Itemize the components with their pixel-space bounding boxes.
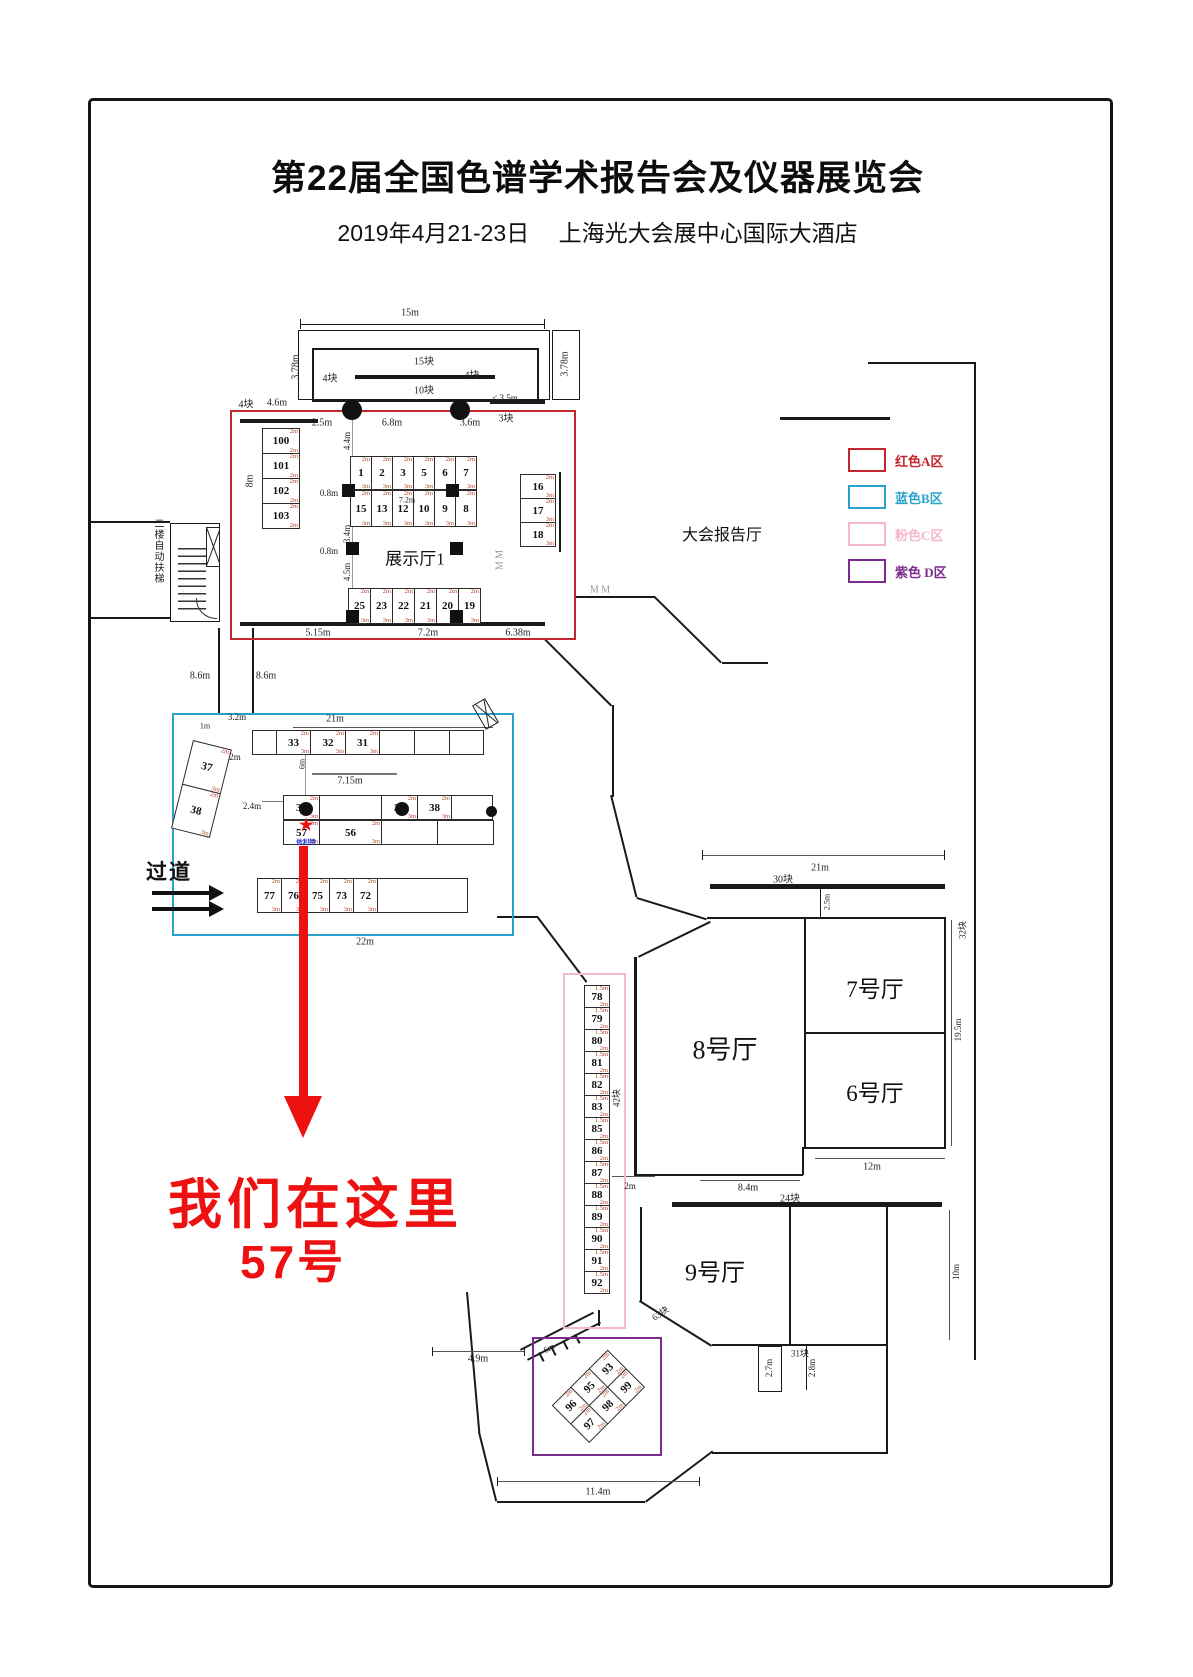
booth-number: 21	[420, 600, 431, 612]
booth-empty	[252, 730, 277, 755]
wall-line	[815, 1158, 945, 1159]
booth-number: 56	[345, 827, 356, 839]
column-marker	[342, 400, 362, 420]
dim-label: 2.5m	[312, 418, 332, 429]
booth-32: 322m3m	[310, 730, 346, 755]
here-arrow-head-icon	[284, 1096, 322, 1138]
zone-b-mid-row1: 352m3m372m3m382m3m	[283, 795, 493, 820]
dim-label: < 3.5m	[492, 393, 518, 403]
booth-size-label: 2m	[449, 588, 457, 595]
booth-number: 23	[376, 600, 387, 612]
booth-size-label: 2m	[600, 1287, 608, 1294]
booth-86: 861.5m2m	[584, 1139, 610, 1162]
booth-size-label: 2m	[383, 490, 391, 497]
booth-number: 19	[464, 600, 475, 612]
booth-size-label: 2m	[546, 474, 554, 481]
wall-line	[699, 1477, 700, 1486]
dim-label: 2m	[624, 1181, 636, 1191]
escalator-shaft	[206, 527, 220, 567]
dim-label: 19.5m	[953, 1019, 963, 1042]
booth-size-label: 2m	[546, 498, 554, 505]
booth-82: 821.5m2m	[584, 1073, 610, 1096]
dim-label: 6.38m	[505, 628, 530, 639]
column-marker	[395, 802, 409, 816]
booth-number: 10	[419, 503, 430, 515]
wall-line	[252, 628, 254, 713]
wall-line	[634, 957, 637, 1177]
booth-size-label: 3m	[427, 617, 435, 624]
hall9-label: 9号厅	[685, 1253, 745, 1288]
wall-line	[722, 662, 768, 664]
legend-swatch	[848, 559, 886, 583]
booth-92: 921.5m2m	[584, 1271, 610, 1294]
booth-number: 13	[377, 503, 388, 515]
booth-size-label: 3m	[446, 520, 454, 527]
booth-size-label: 1.5m	[595, 1249, 608, 1256]
booth-size-label: 2m	[344, 878, 352, 885]
wall-line	[432, 1351, 525, 1352]
dim-label: 4.6m	[267, 398, 287, 409]
dim-label: 2.5m	[823, 894, 832, 910]
booth-size-label: 2m	[362, 456, 370, 463]
booth-size-label: 2m	[362, 490, 370, 497]
dim-label: 2.8m	[807, 1359, 817, 1377]
wall-line	[780, 417, 890, 420]
column-marker	[342, 484, 355, 497]
booth-size-label: 2m	[383, 588, 391, 595]
column-marker	[486, 806, 497, 817]
wall-line	[944, 850, 945, 860]
dim-label: 2.7m	[764, 1359, 774, 1377]
booth-size-label: 3m	[301, 748, 309, 755]
dim-label: 3.6m	[460, 418, 480, 429]
booth-size-label: 1.5m	[595, 1227, 608, 1234]
booth-size-label: 1.5m	[595, 985, 608, 992]
booth-size-label: 1.5m	[595, 1183, 608, 1190]
booth-size-label: 2m	[467, 490, 475, 497]
booth-size-label: 2m	[272, 878, 280, 885]
booth-73: 732m3m	[329, 878, 354, 913]
dim-label: 32块	[956, 921, 969, 939]
booth-empty	[377, 878, 468, 913]
wall-line	[789, 1207, 791, 1345]
dim-label: 15块	[414, 353, 434, 368]
booth-31: 312m3m	[345, 730, 380, 755]
booth-size-label: 2m	[370, 730, 378, 737]
booth-77: 772m3m	[257, 878, 282, 913]
wall-line	[974, 362, 976, 1360]
dim-label: 4.5m	[342, 563, 352, 581]
wall-line	[702, 850, 703, 860]
booth-83: 831.5m2m	[584, 1095, 610, 1118]
page-subtitle: 2019年4月21-23日 上海光大会展中心国际大酒店	[88, 214, 1107, 248]
booth-size-label: 2m	[320, 878, 328, 885]
column-marker	[446, 484, 459, 497]
legend-row: 蓝色B区	[848, 485, 943, 509]
dim-label: 8.4m	[738, 1183, 758, 1194]
booth-103: 1032m2m	[262, 503, 300, 529]
booth-size-label: 1.5m	[595, 1029, 608, 1036]
wall-line	[707, 917, 945, 919]
booth-number: 9	[442, 503, 448, 515]
hall8-label: 8号厅	[692, 1030, 757, 1067]
booth-size-label: 2m	[467, 456, 475, 463]
dim-label: 2.4m	[243, 801, 261, 811]
dim-label: 6m	[298, 759, 307, 769]
dim-label: 2m	[229, 752, 241, 762]
booth-number: 75	[312, 890, 323, 902]
booth-size-label: 3m	[344, 906, 352, 913]
booth-size-label: 2m	[425, 456, 433, 463]
wall-line	[640, 1207, 642, 1302]
booth-56: 562m3m	[319, 820, 382, 845]
booth-size-label: 2m	[290, 453, 298, 460]
dim-label: 8.6m	[256, 671, 276, 682]
wall-line	[804, 1032, 945, 1034]
booth-number: 6	[442, 467, 448, 479]
wall-line	[802, 1147, 804, 1175]
wall-line	[612, 705, 614, 797]
wall-line	[218, 628, 220, 713]
booth-75: 752m3m	[305, 878, 330, 913]
booth-empty	[449, 730, 484, 755]
booth-101: 1012m2m	[262, 453, 300, 479]
booth-size-label: 1.5m	[595, 1007, 608, 1014]
booth-size-label: 3m	[404, 520, 412, 527]
booth-18: 182m3m	[520, 522, 556, 547]
booth-number: 37	[200, 760, 214, 774]
booth-size-label: 3m	[405, 617, 413, 624]
booth-number: 95	[581, 1379, 597, 1395]
dim-label: 6.8m	[382, 418, 402, 429]
booth-size-label: 3m	[383, 483, 391, 490]
dim-label: 7.2m	[418, 628, 438, 639]
booth-number-text: 57号	[240, 1226, 346, 1292]
escalator-label: 二楼自动扶梯	[150, 518, 165, 622]
wall-line	[868, 362, 975, 364]
zone-b-row-bottom: 772m3m762m3m752m3m732m3m722m3m	[257, 878, 468, 913]
wall-line	[497, 1477, 498, 1486]
booth-size-label: 3m	[442, 813, 450, 820]
booth-empty	[379, 730, 415, 755]
booth-number: 38	[189, 804, 203, 818]
wall-line	[710, 884, 945, 889]
booth-size-label: 3m	[425, 483, 433, 490]
dim-label: 3.78m	[560, 351, 571, 376]
page-title: 第22届全国色谱学术报告会及仪器展览会	[88, 150, 1107, 201]
column-marker	[299, 802, 313, 816]
booth57-star-icon: ★	[299, 815, 313, 835]
dim-label: 15m	[401, 308, 419, 319]
booth-number: 103	[273, 510, 290, 522]
dim-label: 3.2m	[228, 712, 246, 722]
booth-size-label: 3m	[471, 617, 479, 624]
booth-number: 76	[288, 890, 299, 902]
booth-number: 16	[533, 481, 544, 493]
booth-number: 99	[618, 1379, 634, 1395]
dim-label: 0.8m	[320, 488, 338, 498]
booth-empty	[437, 820, 494, 845]
booth-number: 8	[463, 503, 469, 515]
dim-label: 4.9m	[468, 1354, 488, 1365]
legend-row: 红色A区	[848, 448, 943, 472]
booth-size-label: 1.5m	[595, 1073, 608, 1080]
booth-size-label: 3m	[404, 483, 412, 490]
booth-size-label: 3m	[272, 906, 280, 913]
dim-label: 1m	[200, 722, 210, 731]
booth-13: 132m3m	[371, 490, 393, 527]
hall-exhibit1-label: 展示厅1	[385, 545, 445, 570]
booth-size-label: 2m	[471, 588, 479, 595]
booth-number: 72	[360, 890, 371, 902]
wall-line	[951, 920, 952, 1146]
wall-line	[432, 1347, 433, 1356]
booth-89: 891.5m2m	[584, 1205, 610, 1228]
booth-16: 162m3m	[520, 474, 556, 499]
zone-c-column: 781.5m2m791.5m2m801.5m2m811.5m2m821.5m2m…	[584, 985, 610, 1294]
booth-2: 22m3m	[371, 456, 393, 490]
booth-100: 1002m2m	[262, 428, 300, 454]
dim-label: 12m	[863, 1162, 881, 1173]
booth-size-label: 2m	[209, 791, 219, 800]
booth-23: 232m3m	[370, 588, 393, 624]
booth-number: 77	[264, 890, 275, 902]
dim-label: 21m	[326, 714, 344, 725]
legend-row: 粉色C区	[848, 522, 943, 546]
wall-line	[820, 889, 821, 918]
hall6-label: 6号厅	[846, 1074, 904, 1108]
booth-size-label: 2m	[301, 730, 309, 737]
booth-87: 871.5m2m	[584, 1161, 610, 1184]
dim-label: 0.8m	[320, 546, 338, 556]
dim-label: 4块	[239, 396, 254, 411]
booth-size-label: 3m	[362, 520, 370, 527]
column-marker	[450, 610, 463, 623]
booth-90: 901.5m2m	[584, 1227, 610, 1250]
booth-88: 881.5m2m	[584, 1183, 610, 1206]
booth-size-label: 2m	[310, 795, 318, 802]
wall-line	[949, 1210, 950, 1340]
wall-line	[702, 855, 945, 856]
dim-label: 42块	[610, 1089, 623, 1107]
booth-number: 7	[463, 467, 469, 479]
hall-report-label: 大会报告厅	[682, 521, 762, 545]
dim-label: 11.4m	[586, 1487, 611, 1498]
booth-size-label: 2m	[408, 795, 416, 802]
dim-label: 4块	[465, 367, 480, 382]
column-marker	[346, 610, 359, 623]
booth-number: 102	[273, 485, 290, 497]
booth-number: 3	[400, 467, 406, 479]
booth-80: 801.5m2m	[584, 1029, 610, 1052]
booth-number: 1	[358, 467, 364, 479]
booth-number: 97	[581, 1416, 597, 1432]
booth-size-label: 2m	[368, 878, 376, 885]
booth-size-label: 2m	[290, 522, 298, 529]
wall-line	[886, 1207, 888, 1346]
booth-21: 212m3m	[414, 588, 437, 624]
dim-label: M M	[495, 550, 506, 570]
dim-label: 5.15m	[305, 628, 330, 639]
booth-size-label: 3m	[368, 906, 376, 913]
booth-size-label: 3m	[383, 617, 391, 624]
dim-label: 21m	[811, 863, 829, 874]
booth-size-label: 2m	[336, 730, 344, 737]
booth-empty	[381, 820, 438, 845]
hall7-label: 7号厅	[846, 970, 904, 1004]
booth-102: 1022m2m	[262, 478, 300, 504]
booth-91: 911.5m2m	[584, 1249, 610, 1272]
booth-size-label: 1.5m	[595, 1205, 608, 1212]
booth-size-label: 2m	[546, 522, 554, 529]
booth-number: 15	[356, 503, 367, 515]
booth-size-label: 1.5m	[595, 1095, 608, 1102]
booth-size-label: 3m	[408, 813, 416, 820]
legend-label: 红色A区	[895, 451, 943, 470]
booth-79: 791.5m2m	[584, 1007, 610, 1030]
booth-size-label: 3m	[370, 748, 378, 755]
wall-line	[497, 1501, 645, 1503]
booth-number: 18	[533, 529, 544, 541]
wall-line	[575, 596, 655, 598]
zone-b-row-top: 332m3m322m3m312m3m	[252, 730, 484, 755]
booth-number: 98	[600, 1397, 616, 1413]
booth-size-label: 2m	[427, 588, 435, 595]
booth-size-label: 1.5m	[595, 1139, 608, 1146]
wall-line	[700, 1180, 800, 1181]
booth-size-label: 2m	[290, 503, 298, 510]
booth-size-label: 2m	[383, 456, 391, 463]
booth-size-label: 3m	[336, 748, 344, 755]
wall-line	[497, 1481, 700, 1482]
booth-number: 17	[533, 505, 544, 517]
booth-number: 93	[600, 1361, 616, 1377]
booth57-company-label: 依利特	[284, 836, 328, 846]
booth-number: 38	[429, 802, 440, 814]
zone-a-left-column: 1002m2m1012m2m1022m2m1032m2m	[262, 428, 300, 529]
booth-size-label: 3m	[546, 540, 554, 547]
wall-line	[300, 319, 301, 329]
booth-38: 382m3m	[417, 795, 452, 820]
booth-size-label: 3m	[361, 617, 369, 624]
dim-label: 8m	[245, 475, 256, 488]
legend-swatch	[848, 485, 886, 509]
booth-size-label: 3m	[467, 483, 475, 490]
booth-5: 52m3m	[413, 456, 435, 490]
legend-label: 粉色C区	[895, 525, 943, 544]
booth-number: 33	[288, 737, 299, 749]
dim-label: 24块	[780, 1190, 800, 1205]
booth-number: 5	[421, 467, 427, 479]
legend-label: 蓝色B区	[895, 488, 943, 507]
booth-72: 722m3m	[353, 878, 378, 913]
dim-label: 3.4m	[342, 525, 352, 543]
wall-line	[886, 1345, 888, 1453]
booth-size-label: 3m	[320, 906, 328, 913]
wall-line	[544, 319, 545, 329]
here-arrow	[299, 846, 308, 1098]
booth-size-label: 2m	[290, 428, 298, 435]
dim-label: 10块	[414, 382, 434, 397]
legend-row: 紫色 D区	[848, 559, 947, 583]
aisle-arrow-icon	[152, 891, 210, 895]
dim-label: 10m	[951, 1264, 961, 1280]
dim-label: 7.15m	[337, 776, 362, 787]
wall-line	[300, 324, 545, 325]
dim-label: 22m	[356, 937, 374, 948]
column-marker	[346, 542, 359, 555]
booth-size-label: 2m	[290, 478, 298, 485]
booth-empty	[319, 795, 382, 820]
booth-number: 2	[379, 467, 385, 479]
booth-17: 172m3m	[520, 498, 556, 523]
booth-number: 73	[336, 890, 347, 902]
booth-size-label: 2m	[442, 795, 450, 802]
wall-line	[672, 1202, 942, 1207]
booth-size-label: 1.5m	[595, 1051, 608, 1058]
column-marker	[450, 542, 463, 555]
wall-line	[944, 917, 946, 1149]
booth-size-label: 1.5m	[595, 1271, 608, 1278]
legend-swatch	[848, 448, 886, 472]
legend-label: 紫色 D区	[895, 562, 947, 581]
wall-line	[712, 1452, 888, 1454]
zone-a-right-column: 162m3m172m3m182m3m	[520, 474, 556, 547]
dim-label: 30块	[773, 871, 793, 886]
booth-78: 781.5m2m	[584, 985, 610, 1008]
booth-size-label: 3m	[467, 520, 475, 527]
booth-size-label: 1.5m	[595, 1161, 608, 1168]
booth-number: 22	[398, 600, 409, 612]
booth-size-label: 2m	[425, 490, 433, 497]
booth-number: 31	[357, 737, 368, 749]
booth-10: 102m3m	[413, 490, 435, 527]
aisle-label: 过道	[146, 856, 192, 886]
booth-81: 811.5m2m	[584, 1051, 610, 1074]
dim-label: 7.2m	[399, 496, 415, 505]
dim-label: 8.6m	[190, 671, 210, 682]
wall-line	[804, 1147, 945, 1149]
floorplan-page: 第22届全国色谱学术报告会及仪器展览会 2019年4月21-23日 上海光大会展…	[0, 0, 1193, 1677]
booth-size-label: 2m	[405, 588, 413, 595]
wall-line	[636, 1174, 803, 1176]
booth-number: 100	[273, 435, 290, 447]
dim-label: M M	[590, 585, 610, 596]
dim-label: 4.4m	[342, 432, 352, 450]
booth-size-label: 3m	[372, 838, 380, 845]
booth-33: 332m3m	[276, 730, 311, 755]
booth-number: 101	[273, 460, 290, 472]
booth-size-label: 3m	[425, 520, 433, 527]
dim-label: 3.78m	[291, 354, 302, 379]
booth-size-label: 1.5m	[595, 1117, 608, 1124]
booth-85: 851.5m2m	[584, 1117, 610, 1140]
booth-22: 222m3m	[392, 588, 415, 624]
booth-size-label: 3m	[362, 483, 370, 490]
booth-size-label: 3m	[383, 520, 391, 527]
aisle-arrow-icon	[152, 907, 210, 911]
booth-number: 32	[323, 737, 334, 749]
booth-size-label: 2m	[361, 588, 369, 595]
booth-number: 96	[563, 1397, 579, 1413]
booth-size-label: 2m	[446, 456, 454, 463]
booth-empty	[414, 730, 450, 755]
booth-size-label: 2m	[372, 820, 380, 827]
dim-label: 31块	[791, 1347, 809, 1360]
dim-label: 4块	[323, 370, 338, 385]
dim-label: 3块	[499, 410, 514, 425]
booth-3: 32m3m	[392, 456, 414, 490]
